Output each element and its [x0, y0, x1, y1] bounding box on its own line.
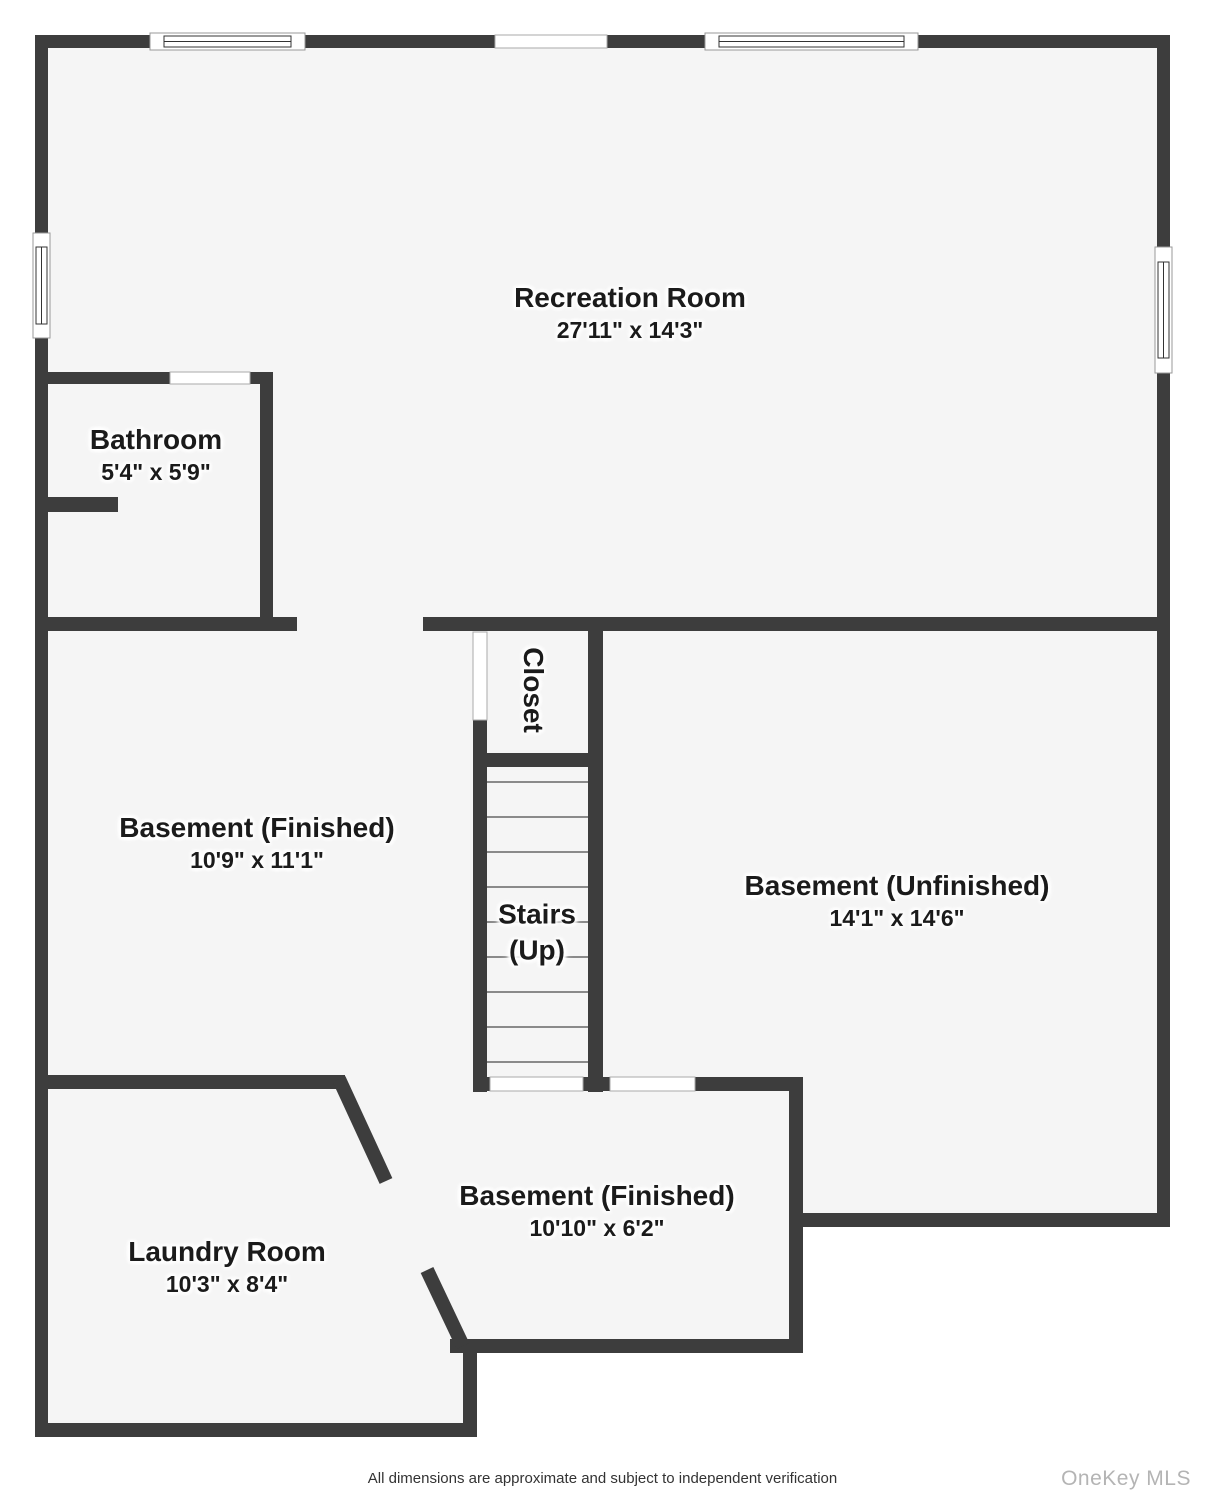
room-dims: (Up)	[509, 933, 565, 969]
window-left	[33, 233, 50, 338]
disclaimer-text: All dimensions are approximate and subje…	[0, 1470, 1205, 1487]
wall-lower-room-right	[789, 1077, 803, 1353]
wall-laundry-top	[35, 1075, 345, 1089]
window-right	[1155, 247, 1172, 373]
room-dims: 10'10" x 6'2"	[529, 1214, 664, 1244]
wall-bathroom-top-left	[35, 372, 170, 384]
room-label-bathroom: Bathroom 5'4" x 5'9"	[90, 422, 222, 488]
wall-stairs-right	[588, 617, 603, 1092]
room-name: Basement (Unfinished)	[745, 868, 1050, 904]
closet-door-opening	[473, 632, 487, 720]
room-name: Basement (Finished)	[459, 1178, 734, 1214]
wall-bathroom-right	[260, 372, 273, 631]
room-name: Basement (Finished)	[119, 810, 394, 846]
room-dims: 5'4" x 5'9"	[101, 458, 211, 488]
wall-mid-horizontal-right	[423, 617, 1170, 631]
wall-mid-horizontal-left	[35, 617, 297, 631]
wall-stairs-left	[473, 720, 487, 1092]
room-name: Bathroom	[90, 422, 222, 458]
room-dims: 10'9" x 11'1"	[190, 846, 324, 876]
window-top-right	[705, 33, 918, 50]
wall-unfinished-bottom	[789, 1213, 1170, 1227]
room-label-recreation: Recreation Room 27'11" x 14'3"	[514, 280, 746, 346]
stairs-landing-opening	[490, 1077, 583, 1091]
room-name: Closet	[515, 647, 551, 733]
room-dims: 27'11" x 14'3"	[557, 316, 704, 346]
top-wall-opening	[495, 35, 607, 48]
wall-laundry-right	[463, 1339, 477, 1437]
mls-watermark: OneKey MLS	[1061, 1467, 1191, 1491]
room-label-basement-unfinished: Basement (Unfinished) 14'1" x 14'6"	[745, 868, 1050, 934]
room-label-basement-finished-lower: Basement (Finished) 10'10" x 6'2"	[459, 1178, 734, 1244]
room-name: Recreation Room	[514, 280, 746, 316]
room-label-stairs: Stairs (Up)	[498, 897, 576, 970]
room-label-laundry: Laundry Room 10'3" x 8'4"	[128, 1234, 326, 1300]
wall-lower-room-bottom	[450, 1339, 803, 1353]
room-label-basement-finished-upper: Basement (Finished) 10'9" x 11'1"	[119, 810, 394, 876]
room-name: Stairs	[498, 897, 576, 933]
bathroom-door-opening	[170, 372, 250, 384]
unfinished-basement-door-opening	[610, 1077, 695, 1091]
room-dims: 10'3" x 8'4"	[166, 1270, 288, 1300]
window-top-left	[150, 33, 305, 50]
wall-closet-bottom	[473, 753, 603, 767]
room-dims: 14'1" x 14'6"	[829, 904, 964, 934]
room-label-closet: Closet	[515, 647, 551, 733]
wall-laundry-bottom	[35, 1423, 477, 1437]
room-name: Laundry Room	[128, 1234, 326, 1270]
wall-bathroom-stub	[35, 497, 118, 512]
floor-plan: Recreation Room 27'11" x 14'3" Bathroom …	[0, 0, 1205, 1498]
